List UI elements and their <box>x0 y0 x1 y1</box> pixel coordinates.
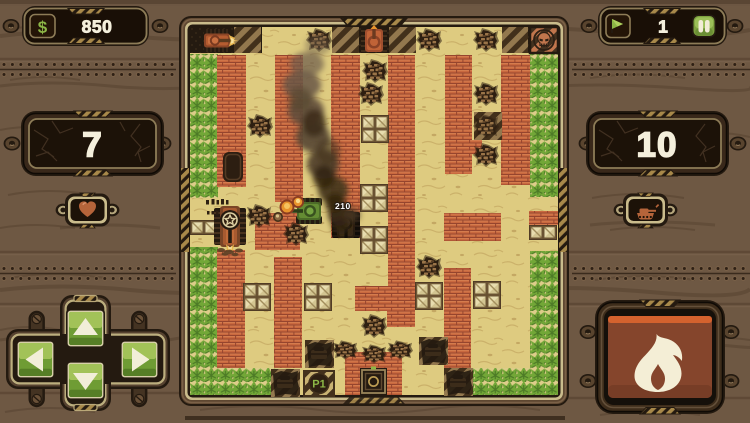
svg-text:P1: P1 <box>312 379 325 391</box>
svg-text:10: 10 <box>637 126 678 165</box>
svg-text:850: 850 <box>82 17 113 37</box>
svg-text:7: 7 <box>82 126 101 165</box>
svg-text:210: 210 <box>335 201 351 211</box>
svg-text:1: 1 <box>658 17 668 37</box>
svg-text:$: $ <box>38 18 48 37</box>
